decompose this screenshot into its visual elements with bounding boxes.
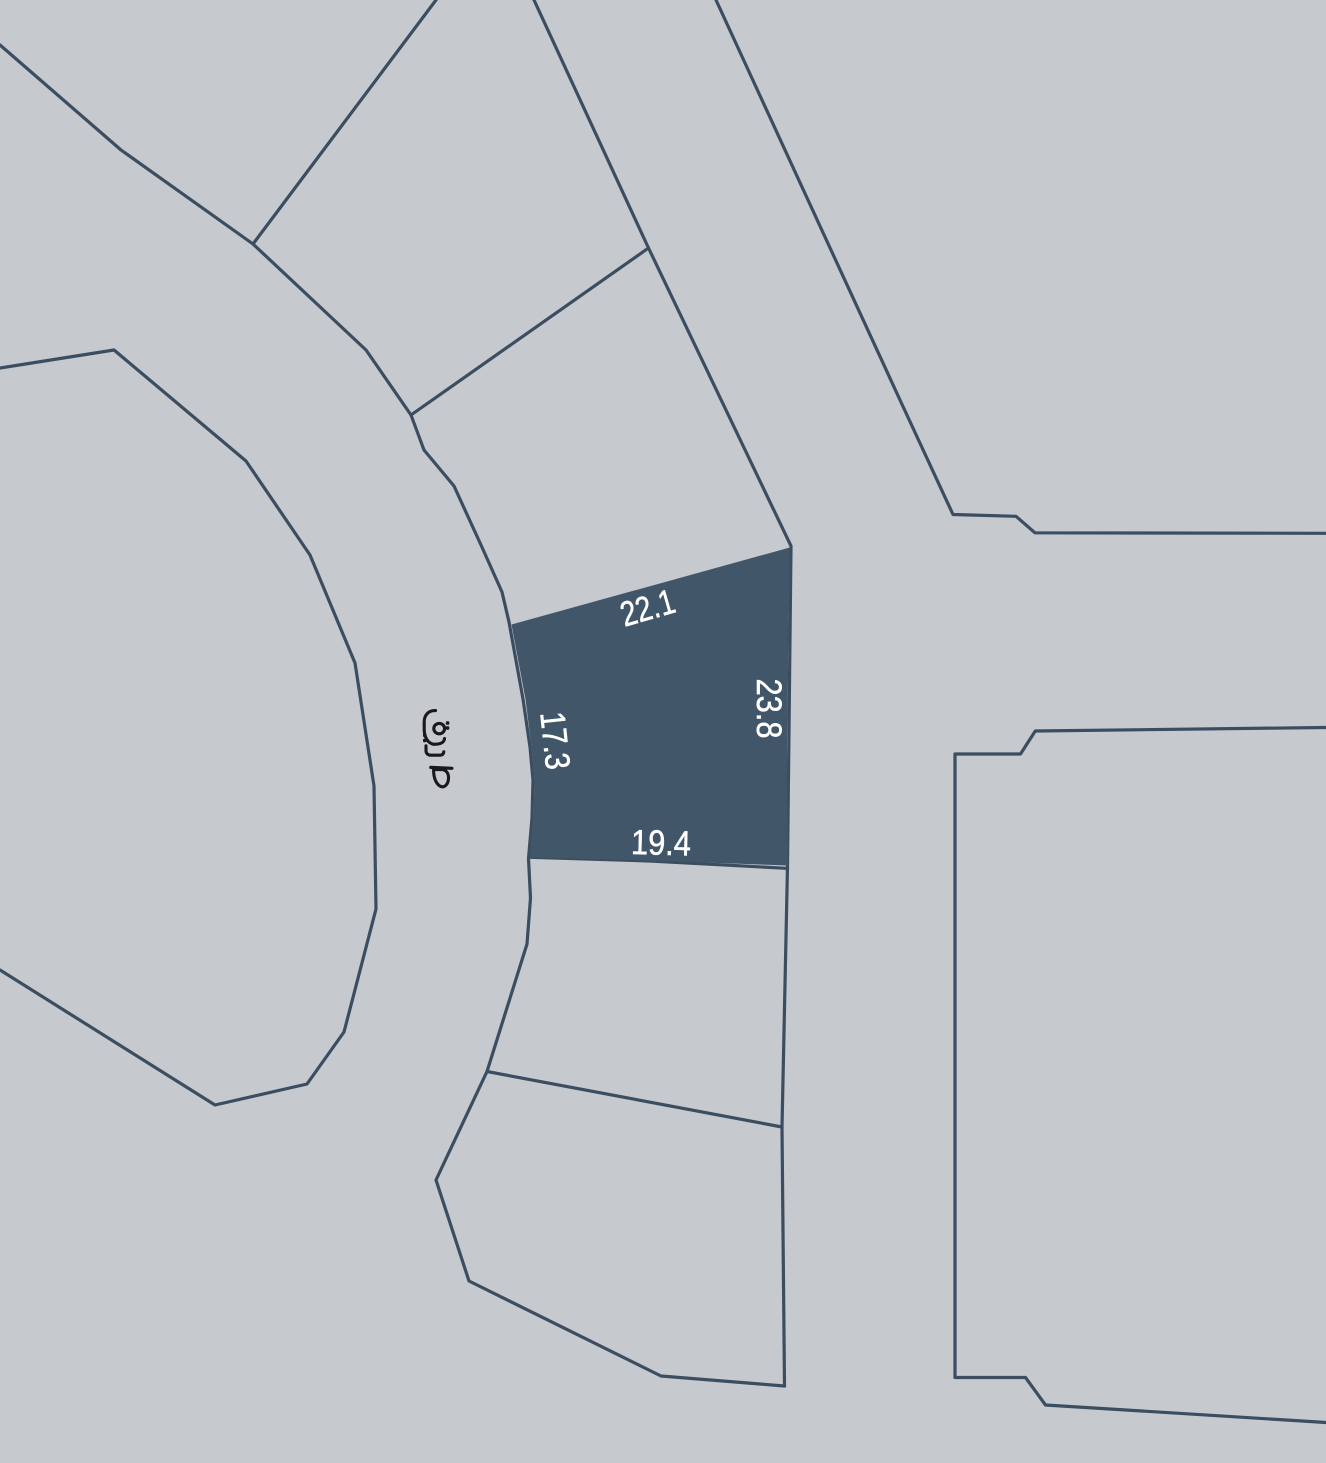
svg-text:23.8: 23.8 [749, 679, 788, 739]
svg-text:17.3: 17.3 [532, 710, 577, 772]
svg-text:19.4: 19.4 [630, 823, 691, 864]
